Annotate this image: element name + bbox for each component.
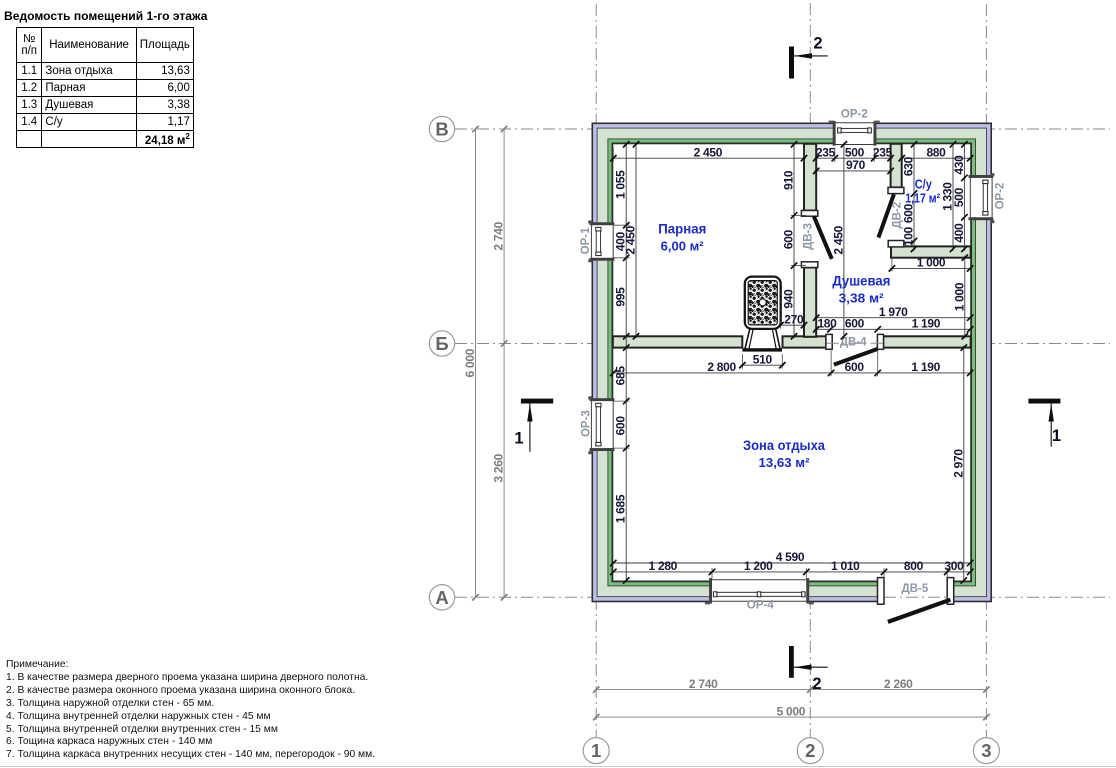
svg-text:800: 800 (904, 559, 924, 573)
svg-text:2: 2 (812, 675, 821, 693)
svg-text:500: 500 (952, 187, 966, 207)
svg-text:1 970: 1 970 (879, 305, 908, 319)
svg-text:Б: Б (435, 333, 448, 354)
svg-text:630: 630 (902, 156, 916, 176)
svg-text:2 450: 2 450 (694, 145, 723, 159)
svg-text:ОР-4: ОР-4 (747, 599, 774, 611)
svg-text:1 190: 1 190 (911, 360, 940, 374)
svg-text:2 740: 2 740 (689, 677, 718, 691)
svg-text:3 260: 3 260 (492, 453, 506, 482)
svg-text:Душевая: Душевая (832, 273, 890, 288)
svg-text:600: 600 (845, 317, 865, 331)
svg-text:400: 400 (952, 223, 966, 243)
svg-text:1: 1 (591, 740, 601, 761)
svg-text:235: 235 (873, 145, 893, 159)
svg-text:970: 970 (846, 158, 866, 172)
svg-text:685: 685 (614, 366, 628, 386)
svg-text:1 280: 1 280 (649, 559, 678, 573)
svg-text:2 450: 2 450 (831, 225, 845, 254)
svg-text:235: 235 (816, 145, 836, 159)
svg-text:600: 600 (614, 416, 628, 436)
svg-text:600: 600 (782, 229, 796, 249)
svg-text:Зона отдыха: Зона отдыха (743, 438, 825, 453)
svg-text:3,38 м²: 3,38 м² (839, 290, 885, 305)
svg-text:ОР-2: ОР-2 (995, 183, 1007, 210)
svg-text:13,63 м²: 13,63 м² (759, 455, 811, 470)
svg-text:910: 910 (782, 170, 796, 190)
svg-text:1: 1 (1052, 427, 1061, 445)
svg-text:4 590: 4 590 (776, 550, 805, 564)
svg-text:1 685: 1 685 (614, 494, 628, 523)
svg-text:ОР-1: ОР-1 (580, 227, 592, 254)
svg-text:3: 3 (981, 740, 991, 761)
svg-text:100: 100 (902, 226, 916, 246)
svg-text:2 740: 2 740 (492, 221, 506, 250)
svg-text:1,17 м²: 1,17 м² (905, 191, 940, 205)
svg-text:1 055: 1 055 (614, 170, 628, 199)
svg-text:ОР-3: ОР-3 (580, 410, 592, 437)
svg-text:995: 995 (614, 287, 628, 307)
svg-text:940: 940 (782, 289, 796, 309)
svg-text:ДВ-5: ДВ-5 (902, 583, 929, 595)
svg-text:180: 180 (817, 317, 837, 331)
svg-text:6,00 м²: 6,00 м² (661, 238, 705, 253)
svg-text:1 200: 1 200 (744, 559, 773, 573)
svg-text:2 450: 2 450 (624, 225, 638, 254)
svg-text:2: 2 (805, 740, 815, 761)
svg-text:2 970: 2 970 (951, 449, 965, 478)
svg-text:5 000: 5 000 (777, 704, 806, 718)
svg-text:6 000: 6 000 (463, 348, 477, 377)
svg-text:В: В (435, 119, 448, 140)
svg-text:600: 600 (845, 360, 865, 374)
svg-text:2 800: 2 800 (707, 360, 736, 374)
svg-text:1 000: 1 000 (917, 256, 946, 270)
svg-text:Парная: Парная (658, 221, 706, 236)
svg-text:ДВ-3: ДВ-3 (803, 223, 815, 250)
svg-text:1 190: 1 190 (912, 317, 941, 331)
svg-text:2: 2 (813, 35, 822, 53)
svg-text:ОР-2: ОР-2 (841, 109, 868, 121)
svg-text:510: 510 (753, 352, 773, 366)
svg-text:300: 300 (944, 559, 964, 573)
svg-text:1 010: 1 010 (831, 559, 860, 573)
svg-text:С/у: С/у (915, 177, 933, 192)
svg-text:430: 430 (952, 155, 966, 175)
svg-text:1 000: 1 000 (952, 282, 966, 311)
svg-text:1: 1 (514, 429, 523, 447)
svg-text:270: 270 (784, 312, 804, 326)
svg-text:600: 600 (902, 203, 916, 223)
svg-text:А: А (435, 587, 448, 608)
svg-text:880: 880 (926, 145, 946, 159)
svg-text:2 260: 2 260 (884, 677, 913, 691)
